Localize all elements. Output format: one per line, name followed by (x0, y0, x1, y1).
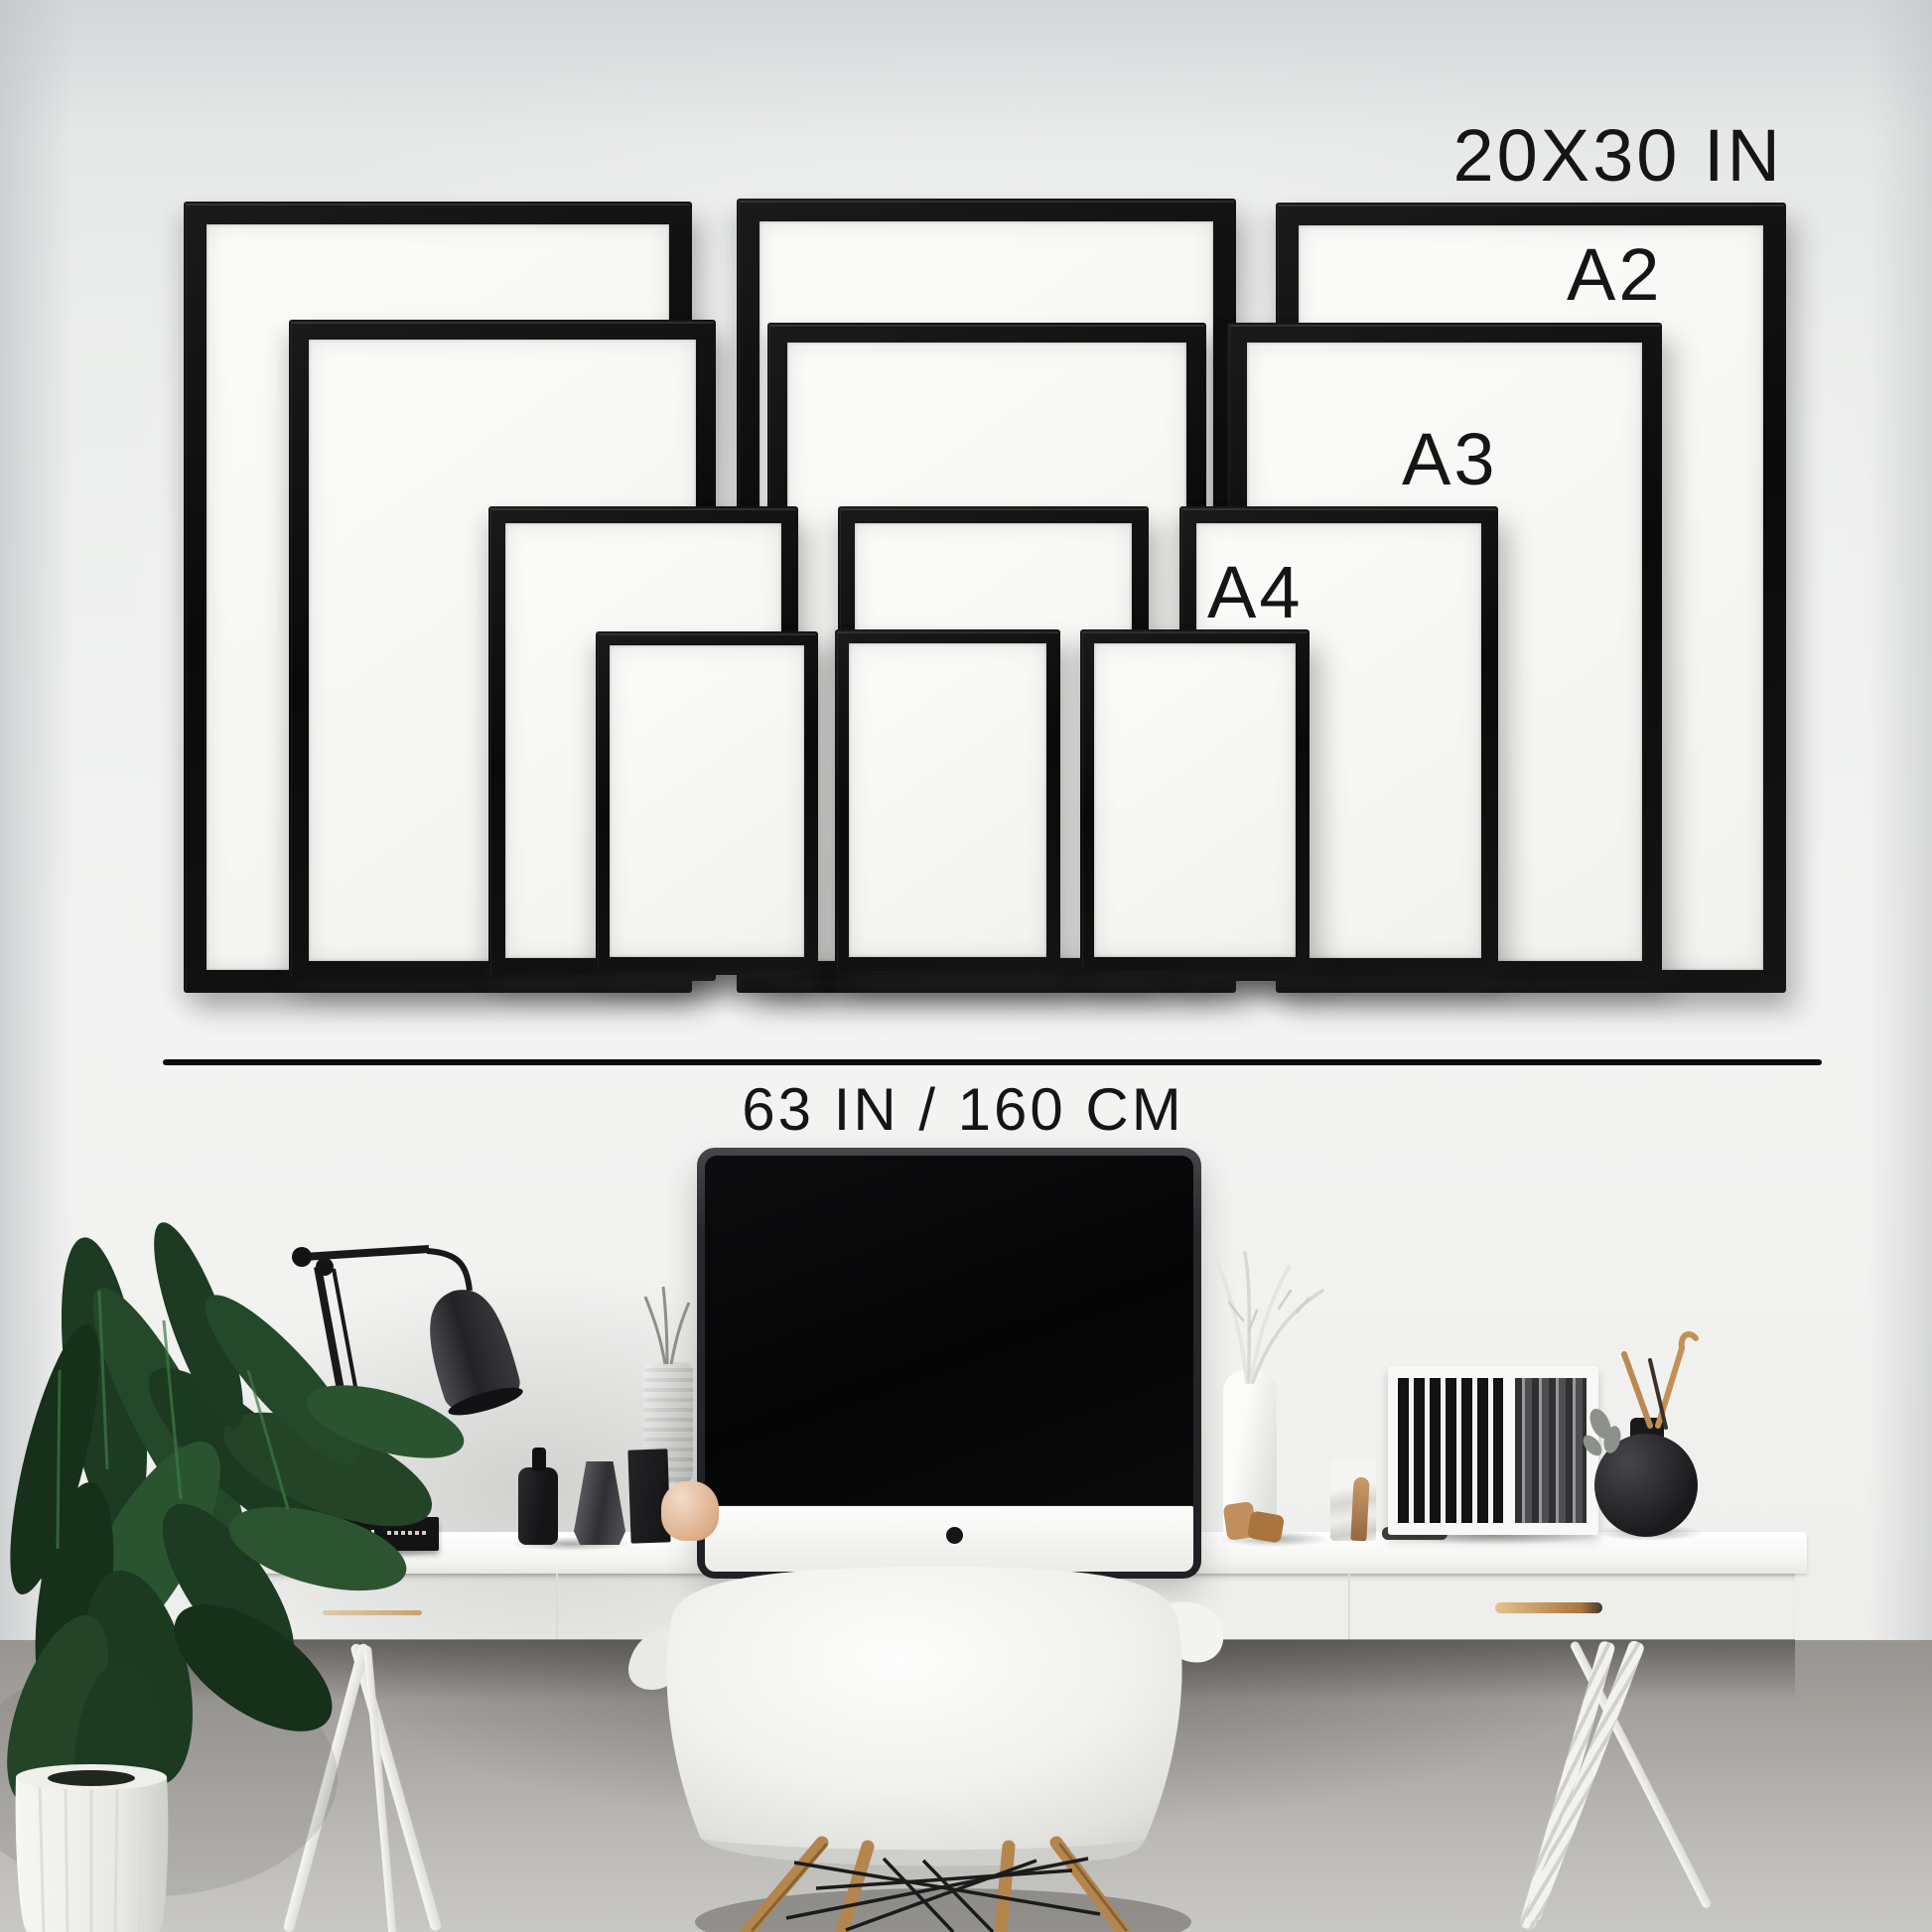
wall-width-line (163, 1059, 1822, 1065)
wall-right-shade (1868, 0, 1932, 1640)
imac-monitor (697, 1148, 1201, 1579)
drawer-slot (1054, 1612, 1172, 1628)
drawer-seam (556, 1574, 558, 1639)
black-flask (518, 1467, 558, 1545)
book-spine-text (387, 1531, 427, 1535)
label-a3: A3 (1402, 423, 1498, 496)
frame-matte (610, 645, 804, 957)
book-spine-text (306, 1530, 375, 1536)
label-a4: A4 (1207, 556, 1304, 629)
wood-figurine (1350, 1477, 1369, 1542)
frond-highlights (58, 1291, 288, 1549)
frame-a4-right (1080, 629, 1310, 971)
twigs (645, 1287, 689, 1364)
book-stack (294, 1517, 439, 1551)
wood-piece (1247, 1510, 1285, 1543)
drawer-seam (1348, 1574, 1350, 1639)
file-box (1388, 1366, 1598, 1535)
smoked-glass-vase (574, 1461, 625, 1545)
desk-cast-shadow (139, 1639, 1795, 1701)
label-20x30: 20X30 IN (1452, 119, 1783, 193)
wall-left-shade (0, 0, 73, 1640)
frame-a4-left (596, 631, 818, 971)
frame-matte (1094, 643, 1296, 957)
monitor-chin (705, 1506, 1193, 1572)
frame-matte (849, 643, 1046, 957)
peach-bowl (661, 1481, 719, 1541)
monitor-stand (921, 1575, 970, 1604)
striped-book-spines (1515, 1378, 1587, 1523)
wall-width-label: 63 IN / 160 CM (367, 1080, 1559, 1140)
black-book-spines (1398, 1378, 1503, 1523)
frame-size-guide-photo: 20X30 IN A2 A3 A4 63 IN / 160 CM (0, 0, 1932, 1932)
monitor-screen (705, 1156, 1193, 1505)
black-sphere-vase (1594, 1434, 1698, 1537)
monitor-logo-dot (946, 1527, 963, 1544)
drawer-handle-right (1495, 1602, 1602, 1613)
drawer-handle-left (323, 1610, 422, 1615)
label-a2: A2 (1567, 238, 1663, 312)
frame-a4-center (835, 629, 1060, 971)
flask-cap (532, 1448, 546, 1471)
desk-lamp (292, 1247, 525, 1519)
dried-branches (1215, 1253, 1322, 1382)
